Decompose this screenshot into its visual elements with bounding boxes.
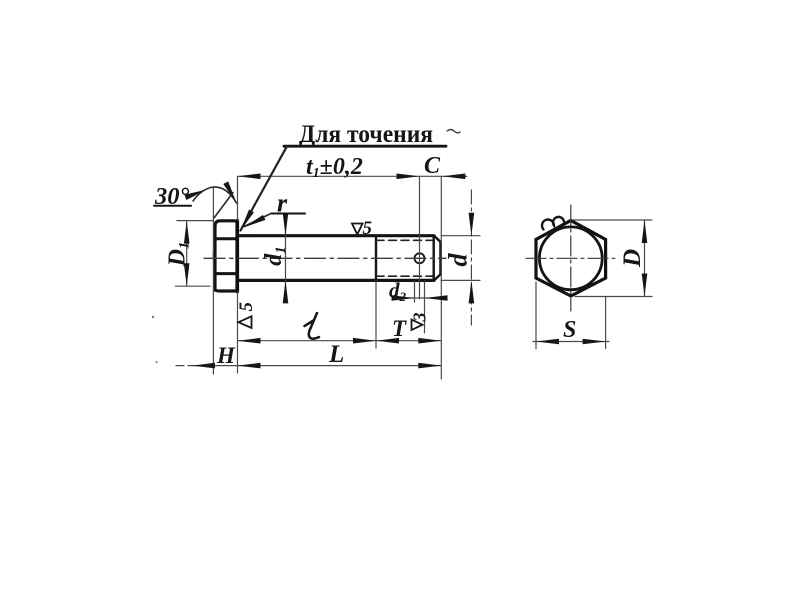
svg-text:S: S	[563, 317, 576, 343]
svg-text:5: 5	[236, 302, 257, 312]
svg-text:D: D	[619, 249, 646, 268]
svg-text:Для точения: Для точения	[299, 121, 433, 148]
svg-text:3: 3	[410, 313, 430, 323]
svg-text:d: d	[444, 253, 473, 267]
svg-text:H: H	[216, 343, 236, 368]
svg-text:C: C	[424, 153, 441, 179]
svg-text:L: L	[328, 341, 344, 368]
svg-text:T: T	[392, 316, 407, 341]
svg-text:5: 5	[363, 218, 373, 239]
